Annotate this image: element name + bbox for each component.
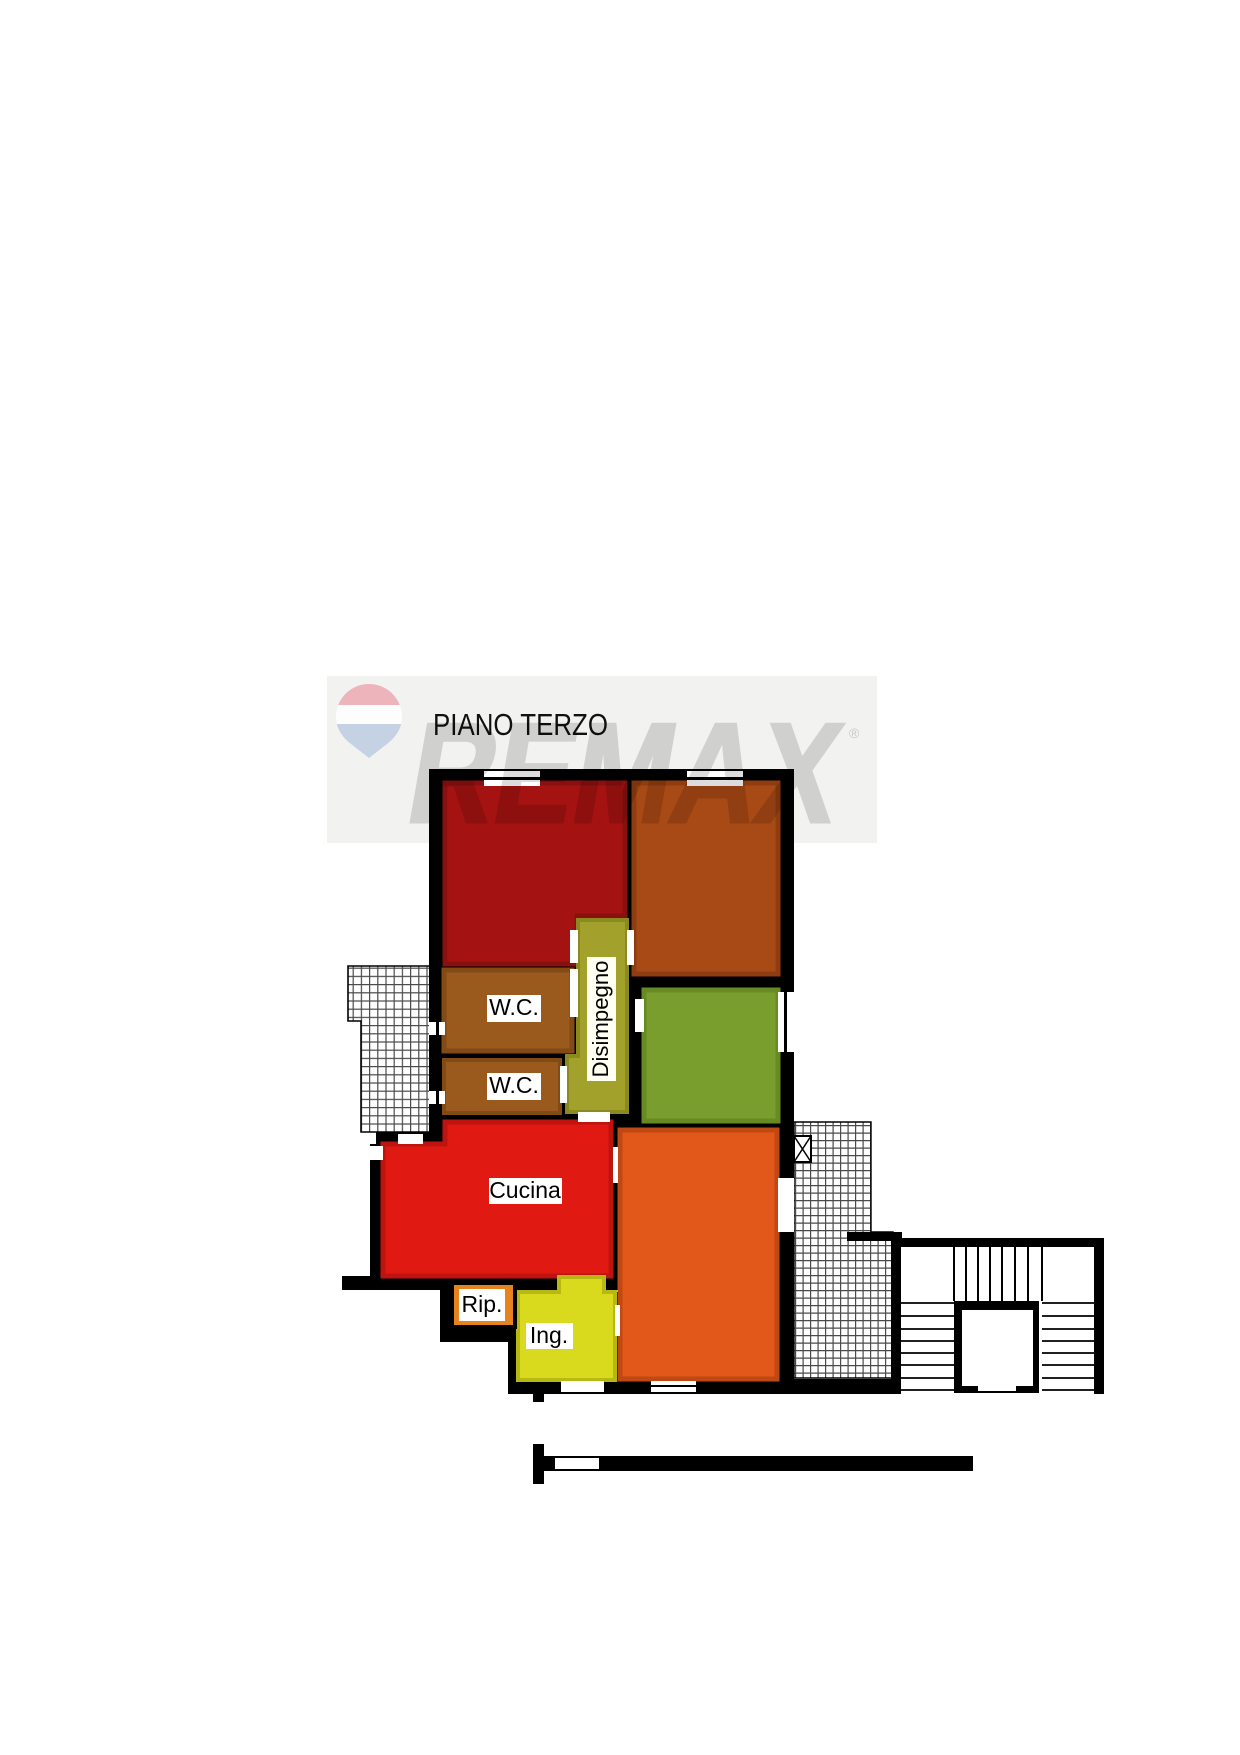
svg-text:Disimpegno: Disimpegno [588, 961, 613, 1078]
svg-text:W.C.: W.C. [489, 994, 539, 1020]
svg-text:Ing.: Ing. [530, 1322, 568, 1348]
svg-text:REMAX: REMAX [398, 694, 853, 853]
svg-text:Rip.: Rip. [462, 1291, 503, 1317]
svg-text:W.C.: W.C. [489, 1072, 539, 1098]
svg-text:®: ® [849, 725, 860, 741]
svg-text:Cucina: Cucina [489, 1177, 561, 1203]
